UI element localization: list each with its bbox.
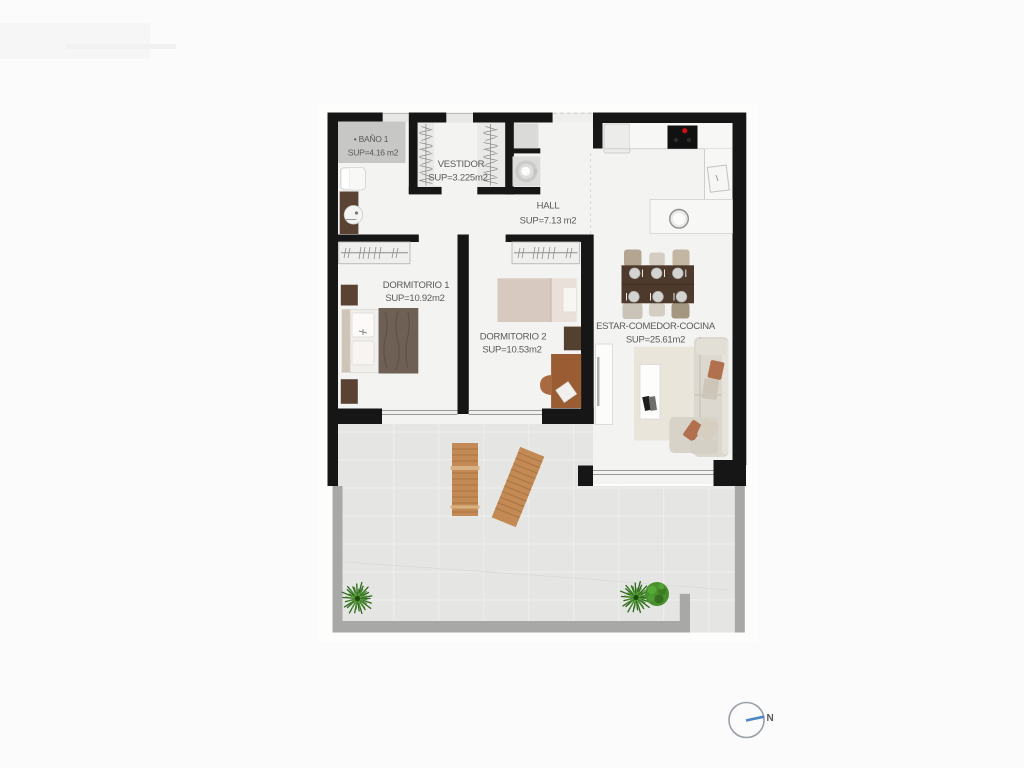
svg-text:SUP=10.53m2: SUP=10.53m2 xyxy=(482,345,541,356)
svg-text:SUP=4.16 m2: SUP=4.16 m2 xyxy=(348,148,399,158)
svg-text:DORMITORIO 2: DORMITORIO 2 xyxy=(480,332,547,343)
svg-text:SUP=10.92m2: SUP=10.92m2 xyxy=(385,293,444,304)
svg-text:SUP=7.13 m2: SUP=7.13 m2 xyxy=(520,216,577,227)
svg-text:VESTIDOR: VESTIDOR xyxy=(438,159,485,170)
svg-text:SUP=3.225m2: SUP=3.225m2 xyxy=(428,173,487,184)
svg-text:N: N xyxy=(767,713,774,724)
svg-text:DORMITORIO 1: DORMITORIO 1 xyxy=(383,280,450,291)
svg-text:HALL: HALL xyxy=(537,201,560,212)
svg-text:SUP=25.61m2: SUP=25.61m2 xyxy=(626,335,685,346)
svg-text:ESTAR-COMEDOR-COCINA: ESTAR-COMEDOR-COCINA xyxy=(596,321,716,332)
svg-text:• BAÑO 1: • BAÑO 1 xyxy=(354,134,389,144)
